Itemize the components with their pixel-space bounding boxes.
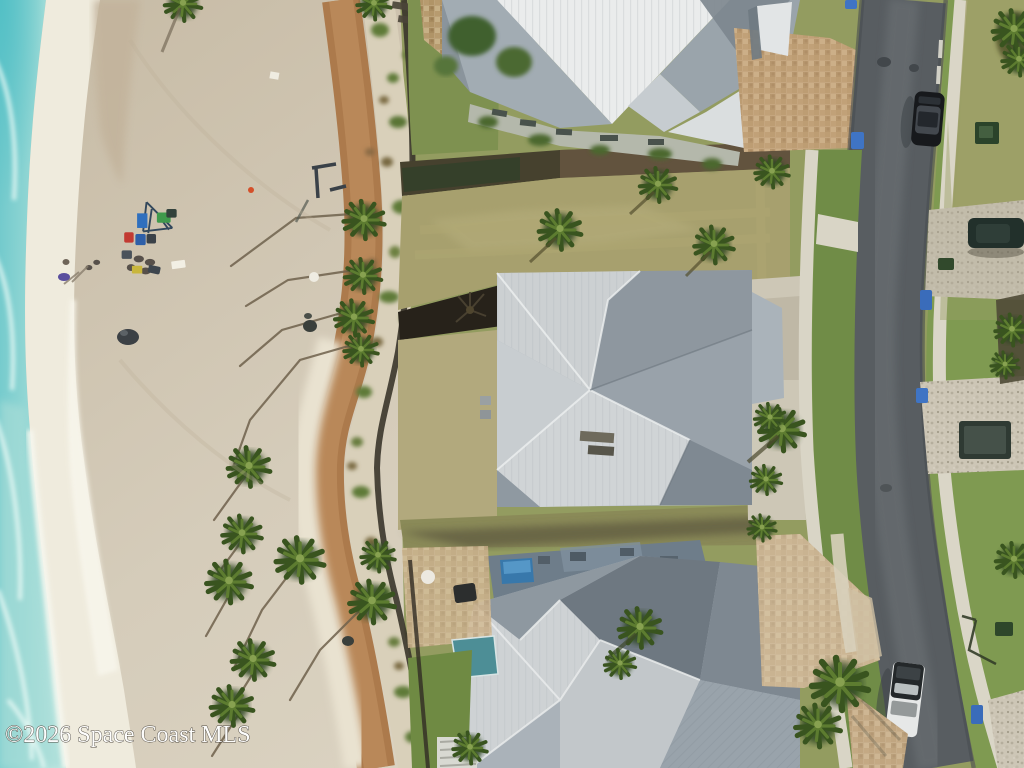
svg-text:©2026 Space Coast MLS: ©2026 Space Coast MLS bbox=[5, 722, 251, 748]
